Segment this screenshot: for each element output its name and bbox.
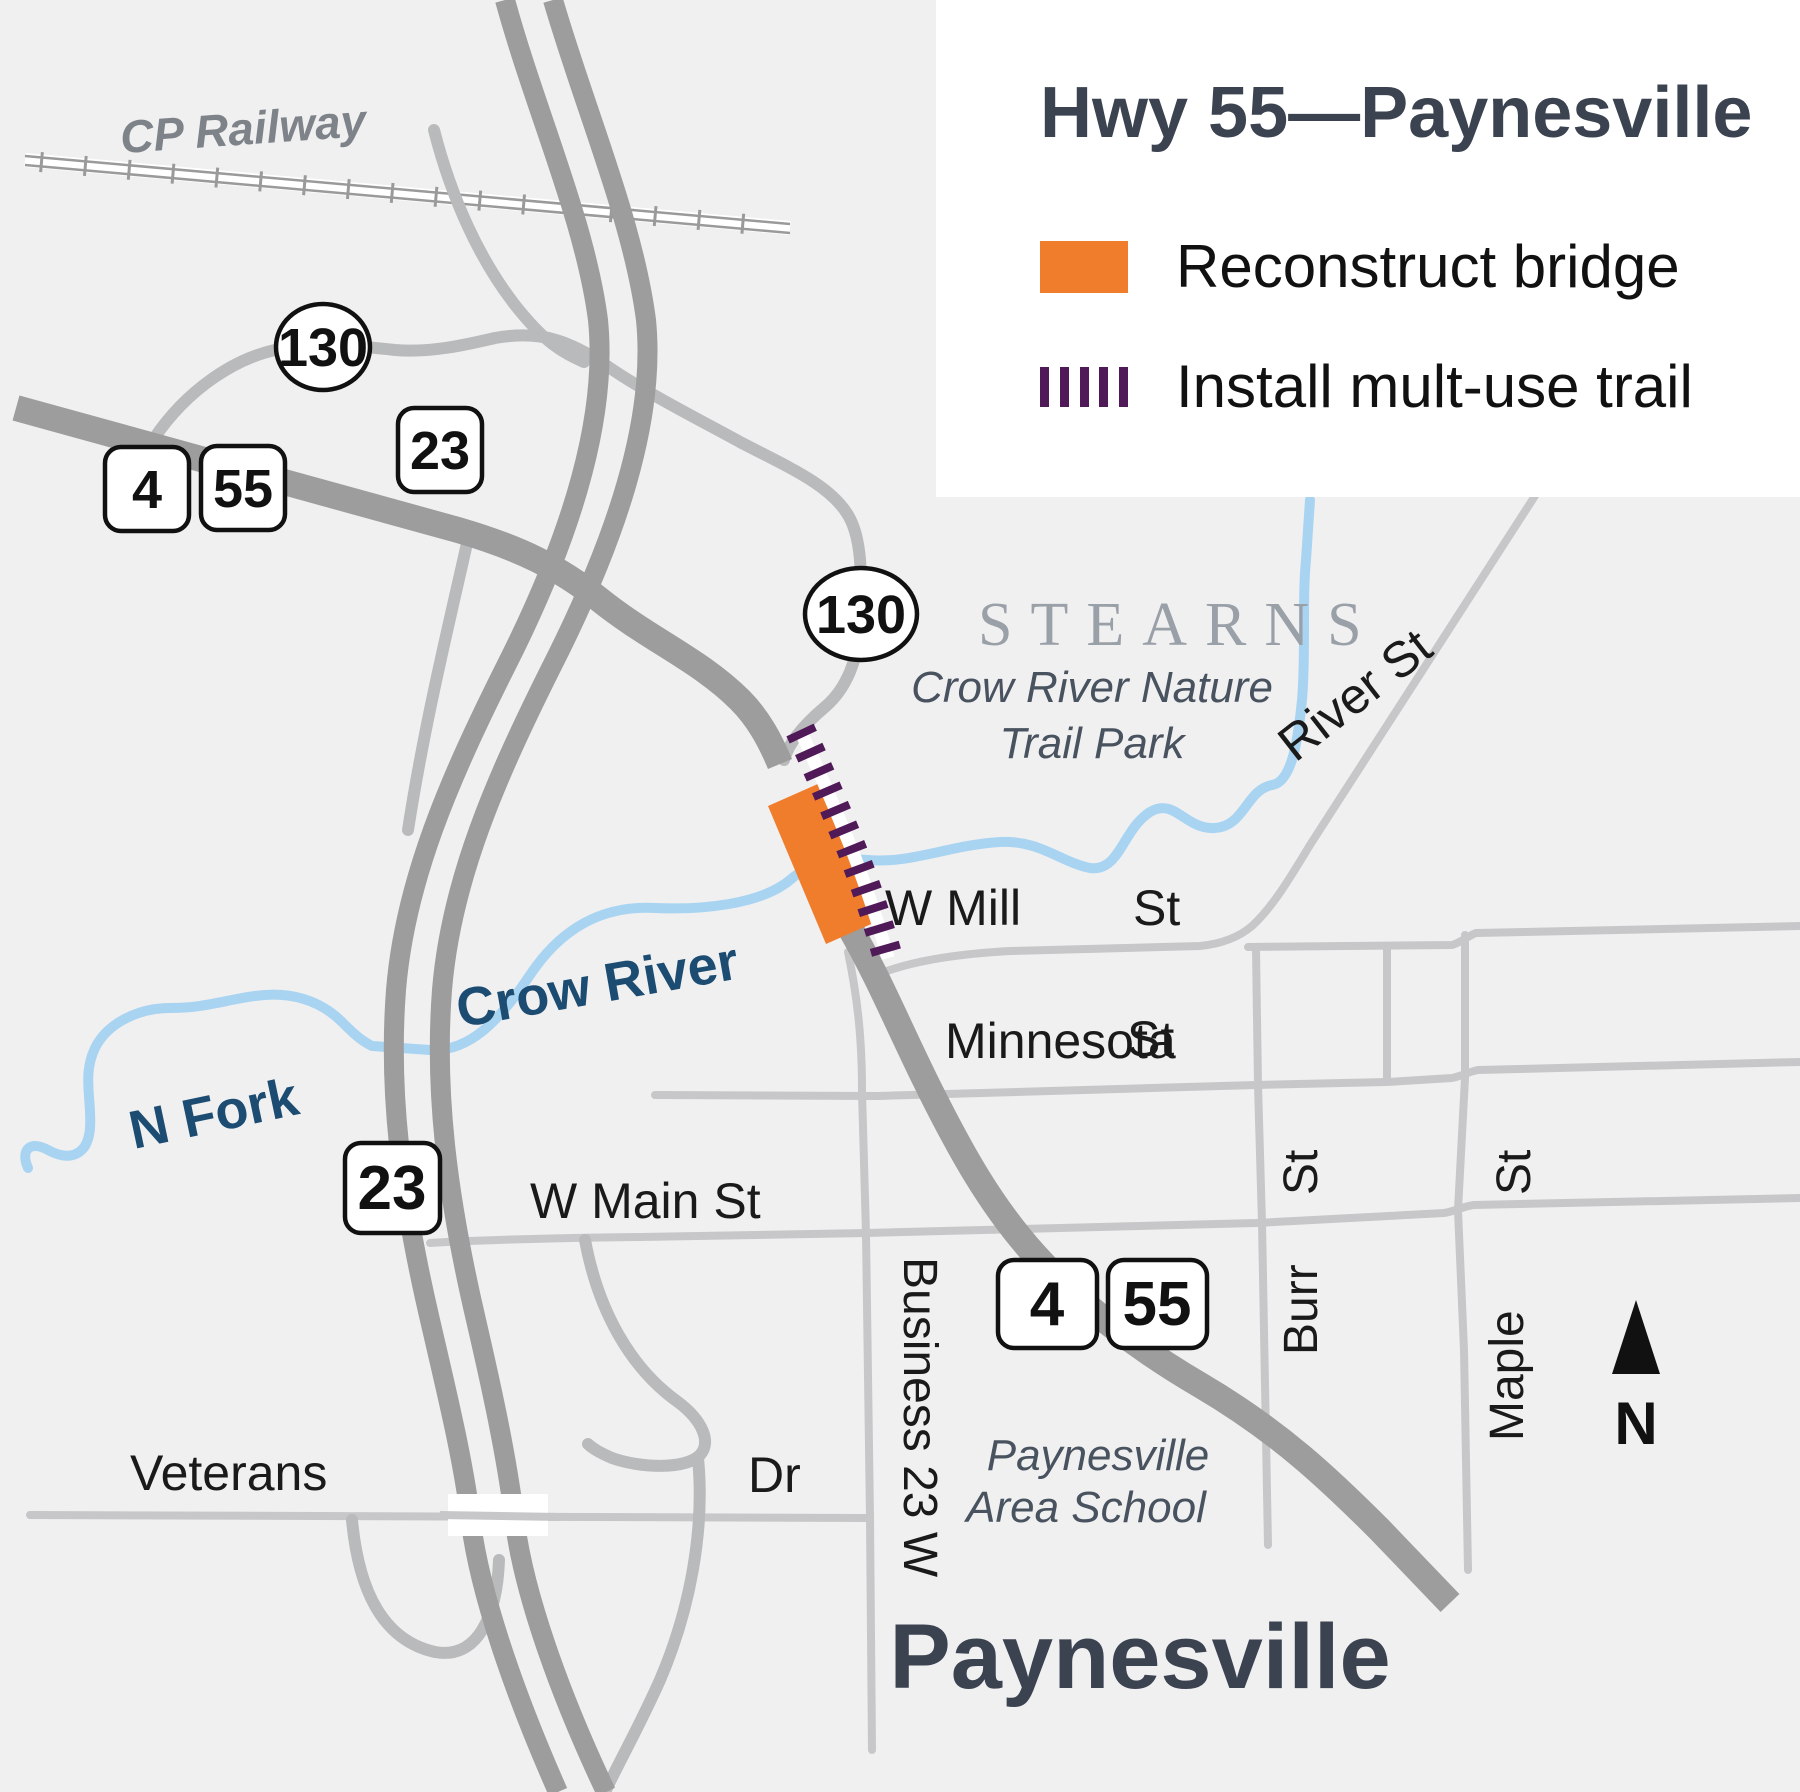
nature-park-label-line2: Trail Park	[1000, 719, 1187, 768]
n-fork-label: N Fork	[124, 1066, 305, 1160]
legend-panel: Hwy 55—Paynesville Reconstruct bridge In…	[936, 0, 1800, 497]
legend-item-multi-use-trail: Install mult-use trail	[1040, 352, 1693, 421]
w-mill-st-label: St	[1133, 880, 1180, 936]
north-label: N	[1614, 1390, 1657, 1457]
route-marker-130-center: 130	[805, 568, 917, 660]
north-arrow-icon	[1612, 1300, 1660, 1374]
route-4-south-label: 4	[1030, 1270, 1065, 1339]
w-mill-label: W Mill	[885, 880, 1021, 936]
crow-river-label: Crow River	[452, 931, 743, 1040]
school-label-line1: Paynesville	[987, 1431, 1210, 1480]
veterans-dr-suffix-label: Dr	[748, 1447, 801, 1503]
route-55-nw-label: 55	[213, 459, 273, 519]
north-arrow: N	[1612, 1300, 1660, 1457]
legend-item-label: Install mult-use trail	[1176, 352, 1693, 421]
maple-label: Maple	[1481, 1310, 1534, 1441]
orange-bridge-swatch-icon	[1040, 241, 1128, 293]
minnesota-st-label: St	[1127, 1011, 1174, 1067]
business-23-w-label: Business 23 W	[893, 1257, 946, 1578]
stearns-county-label: STEARNS	[978, 591, 1380, 659]
route-marker-55-south: 55	[1108, 1260, 1207, 1348]
city-label: Paynesville	[889, 1606, 1390, 1708]
route-130-center-label: 130	[816, 585, 906, 645]
route-130-nw-label: 130	[278, 318, 368, 378]
cp-railway-line	[25, 156, 790, 233]
veterans-label: Veterans	[130, 1445, 327, 1501]
legend-item-reconstruct-bridge: Reconstruct bridge	[1040, 232, 1680, 301]
school-label-line2: Area School	[963, 1483, 1207, 1532]
route-marker-4-south: 4	[998, 1260, 1097, 1348]
route-23-north-label: 23	[410, 421, 470, 481]
burr-label: Burr	[1275, 1264, 1328, 1355]
veterans-overpass	[440, 1494, 560, 1536]
route-23-west-label: 23	[358, 1154, 427, 1223]
maple-st-suffix-label: St	[1488, 1150, 1541, 1195]
legend-item-label: Reconstruct bridge	[1176, 232, 1680, 301]
legend-title: Hwy 55—Paynesville	[1040, 72, 1752, 154]
burr-st-suffix-label: St	[1275, 1150, 1328, 1195]
route-marker-23-west: 23	[345, 1143, 440, 1233]
route-4-nw-label: 4	[132, 460, 162, 520]
route-marker-130-nw: 130	[276, 304, 370, 390]
route-marker-4-nw: 4	[105, 447, 189, 531]
secondary-roads	[148, 130, 861, 1792]
nature-park-label-line1: Crow River Nature	[911, 663, 1273, 712]
cp-railway-label: CP Railway	[118, 94, 370, 163]
purple-trail-dashes-icon	[1040, 361, 1128, 413]
route-55-south-label: 55	[1123, 1270, 1192, 1339]
map-canvas: 130 130 4 55 23 23 4 55 CP Railway STEAR…	[0, 0, 1800, 1792]
route-marker-55-nw: 55	[201, 446, 285, 530]
route-marker-23-north: 23	[398, 408, 482, 492]
w-main-st-label: W Main St	[530, 1173, 761, 1229]
